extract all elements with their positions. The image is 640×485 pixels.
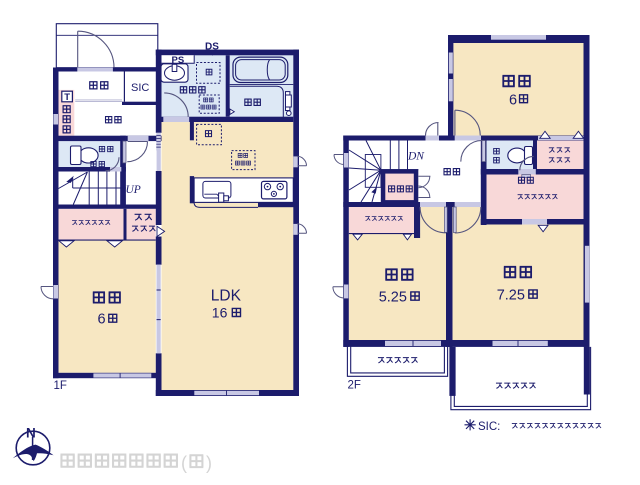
svg-text:1F: 1F — [54, 380, 67, 392]
svg-text:SIC:: SIC: — [478, 421, 500, 433]
svg-text:SIC: SIC — [131, 82, 149, 94]
svg-text:6: 6 — [98, 312, 106, 328]
svg-text:T: T — [64, 92, 70, 103]
svg-text:DN: DN — [407, 151, 425, 163]
svg-text:LDK: LDK — [211, 288, 242, 305]
svg-text:2F: 2F — [348, 380, 361, 392]
svg-text:DS: DS — [205, 42, 219, 53]
svg-text:16: 16 — [212, 305, 228, 321]
svg-text:N: N — [26, 426, 36, 441]
svg-text:5.25: 5.25 — [379, 290, 407, 306]
svg-text:(: ( — [181, 453, 187, 473]
svg-text:6: 6 — [509, 93, 517, 109]
svg-text:UP: UP — [126, 184, 141, 196]
svg-text:): ) — [206, 453, 212, 473]
svg-text:PS: PS — [172, 55, 185, 66]
svg-text:7.25: 7.25 — [497, 288, 525, 304]
